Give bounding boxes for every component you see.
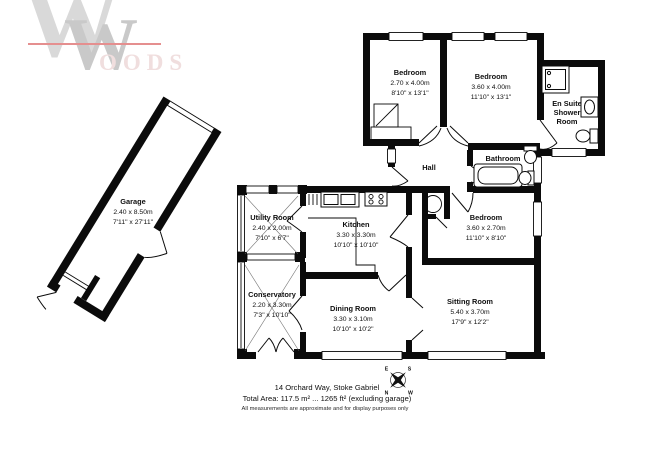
room-label-bathroom: Bathroom (486, 154, 521, 163)
svg-text:7'10" x 6'7": 7'10" x 6'7" (255, 235, 289, 242)
compass-icon: E S W N (385, 367, 413, 397)
svg-text:Bedroom: Bedroom (394, 68, 427, 77)
bathtub-icon (474, 164, 522, 187)
property-address: 14 Orchard Way, Stoke Gabriel (275, 383, 380, 392)
svg-text:Bedroom: Bedroom (470, 213, 503, 222)
svg-text:10'10" x 10'2": 10'10" x 10'2" (332, 326, 374, 333)
conservatory-garden-doors (258, 338, 294, 352)
hall-entrance-door (392, 167, 408, 186)
ensuite-door (540, 120, 557, 149)
svg-text:Dining Room: Dining Room (330, 304, 376, 313)
svg-text:11'10" x 8'10": 11'10" x 8'10" (466, 235, 507, 242)
svg-text:Sitting Room: Sitting Room (447, 297, 493, 306)
svg-text:3.30 x 3.10m: 3.30 x 3.10m (333, 316, 373, 323)
svg-text:7'3" x 10'10": 7'3" x 10'10" (253, 312, 291, 319)
room-label-conservatory: Conservatory 2.20 x 3.30m 7'3" x 10'10" (248, 290, 297, 319)
bedroom1-furniture-icon (371, 104, 411, 140)
svg-text:Conservatory: Conservatory (248, 290, 297, 299)
disclaimer: All measurements are approximate and for… (242, 406, 409, 412)
room-label-bedroom-3: Bedroom 3.60 x 2.70m 11'10" x 8'10" (466, 213, 507, 242)
svg-text:Shower: Shower (554, 108, 581, 117)
room-label-garage: Garage 2.40 x 8.50m 7'11" x 27'11" (113, 197, 154, 226)
total-area: Total Area: 117.5 m² ... 1265 ft² (exclu… (243, 394, 412, 403)
stove-icon (365, 192, 387, 206)
svg-text:8'10" x 13'1": 8'10" x 13'1" (391, 90, 429, 97)
bedroom3-door (452, 193, 473, 212)
svg-text:2.40 x 2.00m: 2.40 x 2.00m (252, 225, 292, 232)
svg-text:Bedroom: Bedroom (475, 72, 508, 81)
svg-text:Room: Room (557, 117, 578, 126)
ensuite-sink-icon (581, 97, 598, 117)
shower-icon (542, 66, 569, 93)
svg-text:Utility Room: Utility Room (250, 213, 294, 222)
room-label-bedroom-1: Bedroom 2.70 x 4.00m 8'10" x 13'1" (390, 68, 430, 97)
garage-side-door (145, 232, 175, 266)
svg-text:2.70 x 4.00m: 2.70 x 4.00m (390, 80, 430, 87)
kitchen-dining-door (378, 275, 406, 291)
dining-sitting-opening (412, 298, 423, 340)
bathroom-sink-icon (519, 171, 534, 185)
svg-text:3.60 x 4.00m: 3.60 x 4.00m (471, 84, 511, 91)
bedroom2-door (447, 126, 468, 146)
garage-metric: 2.40 x 8.50m (113, 209, 153, 216)
svg-text:11'10" x 13'1": 11'10" x 13'1" (471, 94, 512, 101)
bedroom1-door (419, 126, 441, 146)
svg-text:17'9" x 12'2": 17'9" x 12'2" (451, 319, 489, 326)
svg-text:3.60 x 2.70m: 3.60 x 2.70m (466, 225, 506, 232)
room-label-kitchen: Kitchen 3.30 x 3.30m 10'10" x 10'10" (334, 220, 379, 249)
garage-name: Garage (120, 197, 145, 206)
floor-plan-svg: Garage 2.40 x 8.50m 7'11" x 27'11" Bedro… (0, 0, 650, 450)
room-label-en-suite: En Suite Shower Room (552, 99, 582, 126)
svg-text:Kitchen: Kitchen (342, 220, 370, 229)
room-label-hall: Hall (422, 163, 436, 172)
svg-text:En Suite: En Suite (552, 99, 582, 108)
garage-imperial: 7'11" x 27'11" (113, 219, 154, 226)
svg-text:3.30 x 3.30m: 3.30 x 3.30m (336, 232, 376, 239)
compass-south: S (408, 367, 412, 373)
kitchen-sink-icon (309, 192, 359, 207)
svg-text:5.40 x 3.70m: 5.40 x 3.70m (450, 309, 490, 316)
compass-east: E (385, 367, 389, 373)
svg-text:10'10" x 10'10": 10'10" x 10'10" (334, 242, 379, 249)
room-label-bedroom-2: Bedroom 3.60 x 4.00m 11'10" x 13'1" (471, 72, 512, 101)
room-label-sitting: Sitting Room 5.40 x 3.70m 17'9" x 12'2" (447, 297, 493, 326)
room-label-dining: Dining Room 3.30 x 3.10m 10'10" x 10'2" (330, 304, 376, 333)
bathroom-toilet-icon (524, 146, 537, 164)
ensuite-toilet-icon (576, 129, 598, 143)
room-label-utility: Utility Room 2.40 x 2.00m 7'10" x 6'7" (250, 213, 294, 242)
garage-door-window (167, 101, 214, 132)
svg-text:2.20 x 3.30m: 2.20 x 3.30m (252, 302, 292, 309)
kitchen-door (390, 215, 408, 247)
